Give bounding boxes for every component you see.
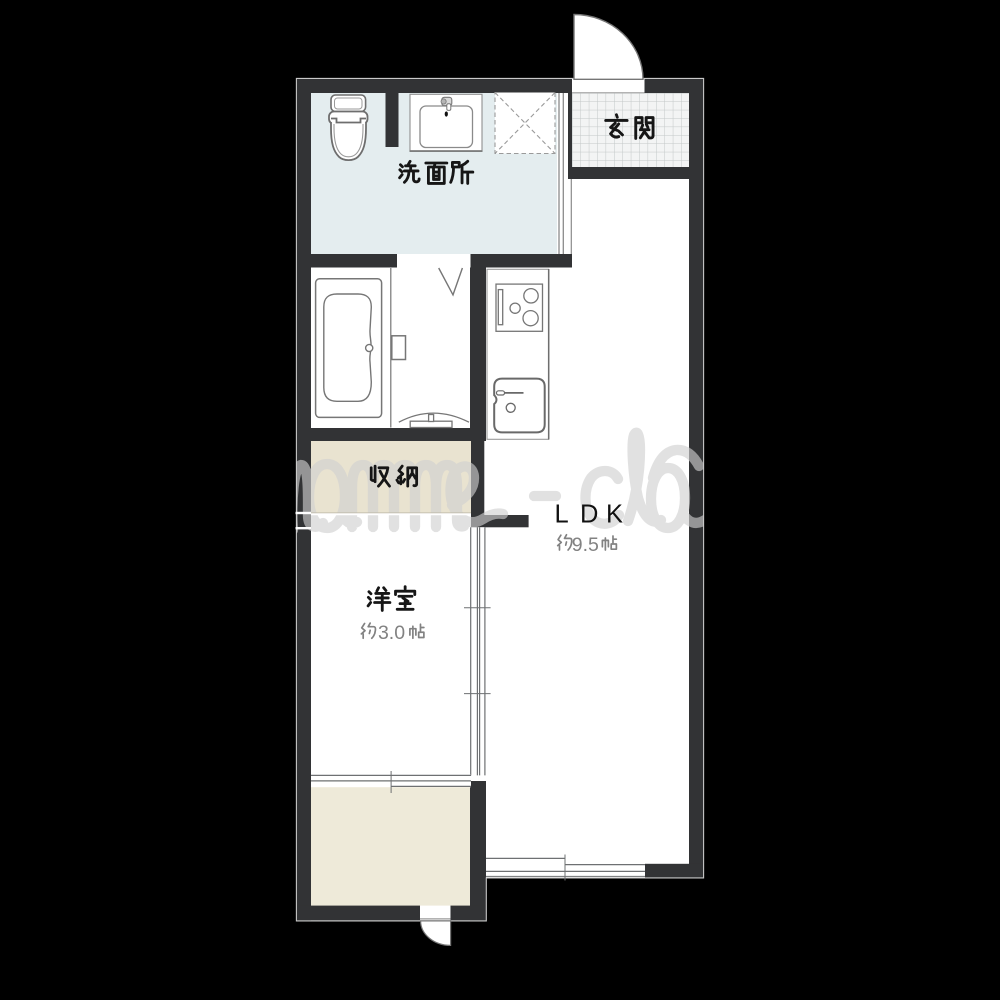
svg-text:3.0: 3.0 <box>378 622 405 644</box>
svg-text:L: L <box>555 501 569 529</box>
svg-text:9.5: 9.5 <box>572 534 599 556</box>
svg-text:D: D <box>580 501 598 529</box>
svg-text:K: K <box>606 501 623 529</box>
